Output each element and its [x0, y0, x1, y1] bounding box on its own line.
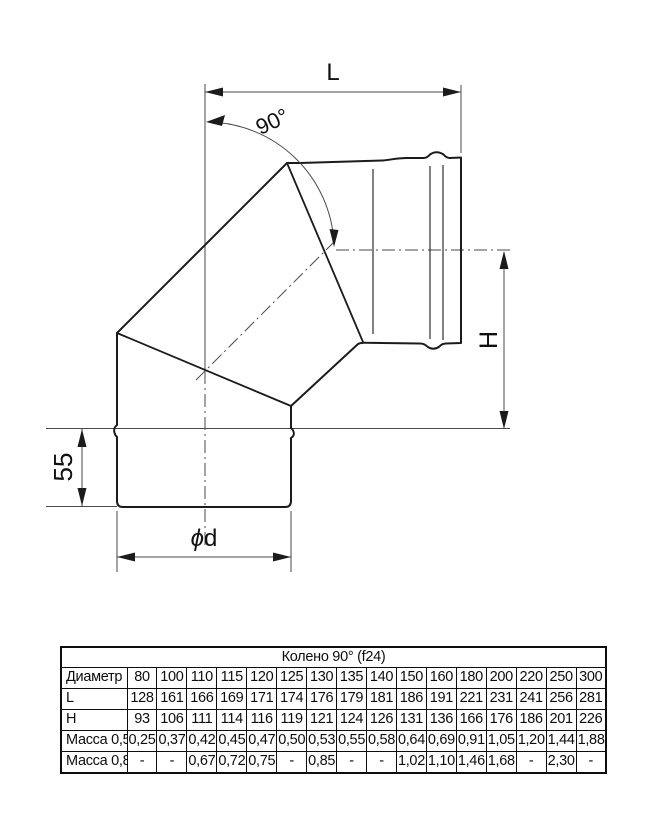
table-title: Колено 90° (f24) — [61, 647, 606, 668]
diameter-cell: 250 — [546, 668, 576, 689]
diameter-cell: 150 — [396, 668, 426, 689]
elbow-90-drawing: L 90° H 55 ϕd — [0, 0, 660, 640]
value-cell: - — [367, 752, 397, 774]
diameter-cell: 200 — [486, 668, 516, 689]
value-cell: 169 — [217, 689, 247, 710]
diameter-cell: 115 — [217, 668, 247, 689]
value-cell: 124 — [337, 710, 367, 731]
value-cell: 106 — [157, 710, 187, 731]
value-cell: 186 — [516, 710, 546, 731]
value-cell: 119 — [277, 710, 307, 731]
value-cell: 179 — [337, 689, 367, 710]
value-cell: 241 — [516, 689, 546, 710]
table-row: L128161166169171174176179181186191221231… — [61, 689, 606, 710]
value-cell: - — [157, 752, 187, 774]
value-cell: 166 — [187, 689, 217, 710]
value-cell: 0,37 — [157, 731, 187, 752]
value-cell: 0,58 — [367, 731, 397, 752]
value-cell: 116 — [247, 710, 277, 731]
diameter-cell: 130 — [307, 668, 337, 689]
diameter-cell: 110 — [187, 668, 217, 689]
row-label-cell: Масса 0,5 — [61, 731, 127, 752]
value-cell: 126 — [367, 710, 397, 731]
diameter-cell: 140 — [367, 668, 397, 689]
value-cell: 1,05 — [486, 731, 516, 752]
value-cell: 171 — [247, 689, 277, 710]
diameter-cell: 80 — [127, 668, 157, 689]
value-cell: 2,30 — [546, 752, 576, 774]
value-cell: 1,44 — [546, 731, 576, 752]
diameter-cell: 125 — [277, 668, 307, 689]
dimension-55: 55 — [48, 429, 87, 506]
value-cell: 174 — [277, 689, 307, 710]
value-cell: 0,75 — [247, 752, 277, 774]
row-label-cell: H — [61, 710, 127, 731]
value-cell: 226 — [576, 710, 606, 731]
centerlines — [196, 84, 510, 545]
arrowhead-arc-top — [206, 115, 225, 126]
value-cell: 186 — [396, 689, 426, 710]
value-cell: 1,20 — [516, 731, 546, 752]
dimension-L: L — [205, 59, 461, 97]
value-cell: 191 — [426, 689, 456, 710]
value-cell: 1,68 — [486, 752, 516, 774]
dimension-diameter-label: ϕd — [191, 525, 218, 552]
table-body: Колено 90° (f24) Диаметр8010011011512012… — [61, 647, 606, 773]
value-cell: 111 — [187, 710, 217, 731]
row-label-cell: L — [61, 689, 127, 710]
angle-label: 90° — [252, 103, 293, 140]
drawing-page: L 90° H 55 ϕd — [0, 0, 660, 830]
value-cell: 161 — [157, 689, 187, 710]
value-cell: 221 — [456, 689, 486, 710]
diameter-cell: 300 — [576, 668, 606, 689]
upper-miter-seam — [287, 163, 363, 342]
value-cell: 0,47 — [247, 731, 277, 752]
arrowhead-right — [273, 553, 291, 562]
row-label-cell: Масса 0,8 — [61, 752, 127, 774]
arrowhead-left — [117, 553, 135, 562]
arrowhead-down — [500, 411, 509, 429]
diameter-cell: 180 — [456, 668, 486, 689]
value-cell: 0,55 — [337, 731, 367, 752]
table-row: Масса 0,50,250,370,420,450,470,500,530,5… — [61, 731, 606, 752]
arrowhead-down — [78, 488, 87, 506]
dimensions-table: Колено 90° (f24) Диаметр8010011011512012… — [60, 646, 607, 774]
arrowhead-left — [205, 88, 223, 97]
diameter-cell: 160 — [426, 668, 456, 689]
value-cell: 0,67 — [187, 752, 217, 774]
value-cell: 0,25 — [127, 731, 157, 752]
value-cell: 1,46 — [456, 752, 486, 774]
value-cell: - — [576, 752, 606, 774]
diameter-cell: 100 — [157, 668, 187, 689]
value-cell: 0,72 — [217, 752, 247, 774]
value-cell: 0,50 — [277, 731, 307, 752]
value-cell: 281 — [576, 689, 606, 710]
value-cell: 0,45 — [217, 731, 247, 752]
reference-lines — [46, 85, 510, 572]
value-cell: 0,42 — [187, 731, 217, 752]
value-cell: 0,85 — [307, 752, 337, 774]
value-cell: 0,64 — [396, 731, 426, 752]
dimension-diameter: ϕd — [117, 525, 291, 562]
dimension-H-label: H — [475, 331, 503, 349]
value-cell: 0,91 — [456, 731, 486, 752]
row-label-cell: Диаметр — [61, 668, 127, 689]
diameter-cell: 120 — [247, 668, 277, 689]
value-cell: 176 — [307, 689, 337, 710]
table-row: H931061111141161191211241261311361661761… — [61, 710, 606, 731]
dimension-H: H — [475, 251, 509, 429]
value-cell: 256 — [546, 689, 576, 710]
value-cell: - — [127, 752, 157, 774]
value-cell: - — [516, 752, 546, 774]
value-cell: - — [337, 752, 367, 774]
value-cell: 136 — [426, 710, 456, 731]
value-cell: 181 — [367, 689, 397, 710]
diameter-cell: 220 — [516, 668, 546, 689]
arrowhead-arc-bottom — [330, 229, 339, 247]
value-cell: 0,53 — [307, 731, 337, 752]
value-cell: 176 — [486, 710, 516, 731]
arrowhead-up — [500, 251, 509, 269]
value-cell: 1,88 — [576, 731, 606, 752]
arrowhead-up — [78, 429, 87, 447]
value-cell: 93 — [127, 710, 157, 731]
elbow-outline — [114, 152, 461, 507]
value-cell: 114 — [217, 710, 247, 731]
value-cell: 121 — [307, 710, 337, 731]
dimension-L-label: L — [326, 59, 339, 86]
value-cell: 201 — [546, 710, 576, 731]
value-cell: - — [277, 752, 307, 774]
value-cell: 1,10 — [426, 752, 456, 774]
dimension-55-label: 55 — [48, 453, 78, 482]
diameter-cell: 135 — [337, 668, 367, 689]
value-cell: 128 — [127, 689, 157, 710]
value-cell: 131 — [396, 710, 426, 731]
socket-detail-lines — [373, 165, 443, 340]
table-row: Масса 0,8--0,670,720,75-0,85--1,021,101,… — [61, 752, 606, 774]
value-cell: 0,69 — [426, 731, 456, 752]
table-header-row: Диаметр801001101151201251301351401501601… — [61, 668, 606, 689]
value-cell: 1,02 — [396, 752, 426, 774]
value-cell: 231 — [486, 689, 516, 710]
arrowhead-right — [443, 88, 461, 97]
lower-miter-seam — [117, 333, 291, 406]
value-cell: 166 — [456, 710, 486, 731]
table-title-row: Колено 90° (f24) — [61, 647, 606, 668]
